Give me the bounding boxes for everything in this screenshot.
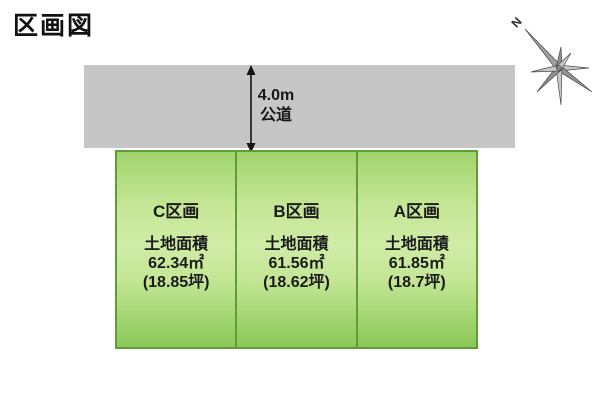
plot-area-tsubo: (18.85坪) (117, 273, 235, 292)
plot-area-sqm: 61.85㎡ (358, 254, 476, 273)
plot-b: B区画 土地面積 61.56㎡ (18.62坪) (235, 152, 355, 347)
plot-area-tsubo: (18.7坪) (358, 273, 476, 292)
plot-area-sqm: 62.34㎡ (117, 254, 235, 273)
compass-ray (531, 65, 559, 72)
plots-container: C区画 土地面積 62.34㎡ (18.85坪) B区画 土地面積 61.56㎡… (115, 150, 478, 349)
plot-area-tsubo: (18.62坪) (237, 273, 355, 292)
plot-name: A区画 (358, 197, 476, 222)
road-label: 4.0m 公道 (244, 86, 308, 126)
plot-c: C区画 土地面積 62.34㎡ (18.85坪) (117, 152, 235, 347)
page-title: 区画図 (13, 6, 94, 42)
compass-north-icon: N (500, 8, 600, 113)
plot-a: A区画 土地面積 61.85㎡ (18.7坪) (356, 152, 476, 347)
plot-area-label: 土地面積 (358, 235, 476, 254)
plot-area-label: 土地面積 (117, 235, 235, 254)
road-type-label: 公道 (244, 106, 308, 126)
plot-area-label: 土地面積 (237, 235, 355, 254)
compass-hub (557, 66, 562, 71)
plot-area-sqm: 61.56㎡ (237, 254, 355, 273)
compass-needle (525, 29, 561, 70)
plot-name: C区画 (117, 197, 235, 222)
plot-name: B区画 (237, 197, 355, 222)
road-width-label: 4.0m (244, 86, 308, 106)
plot-map-canvas: 区画図 N 4.0m 公道 C区画 土地面積 62.34㎡ (18.85坪) B… (0, 0, 600, 415)
compass-north-letter: N (508, 15, 524, 31)
